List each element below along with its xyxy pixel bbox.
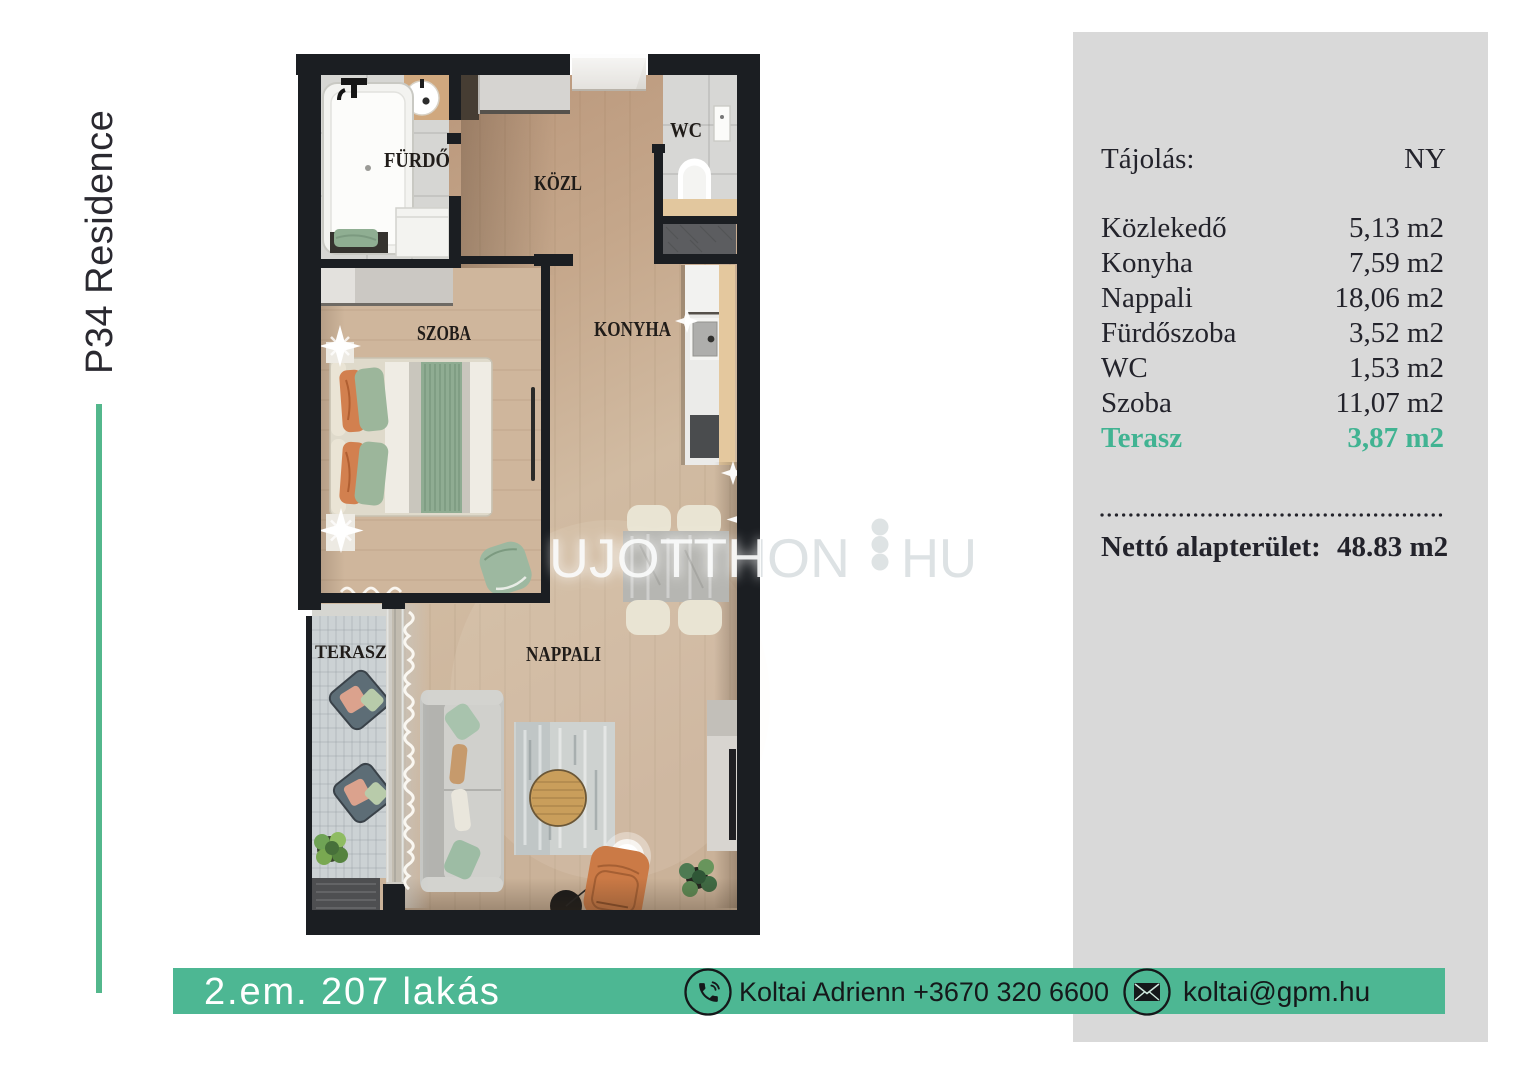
svg-text:Terasz: Terasz [1101,422,1182,454]
svg-text:Fürdőszoba: Fürdőszoba [1101,317,1236,349]
svg-text:3,87 m2: 3,87 m2 [1347,422,1444,454]
svg-text:Konyha: Konyha [1101,247,1193,279]
svg-text:Tájolás:: Tájolás: [1101,143,1194,175]
svg-text:WC: WC [1101,352,1148,384]
svg-text:48.83 m2: 48.83 m2 [1337,531,1448,563]
svg-text:WC: WC [670,118,702,142]
svg-text:5,13 m2: 5,13 m2 [1349,212,1444,244]
svg-text:Közlekedő: Közlekedő [1101,212,1227,244]
svg-text:TERASZ: TERASZ [315,642,387,663]
svg-text:FÜRDŐ: FÜRDŐ [384,148,450,172]
svg-text:Nappali: Nappali [1101,282,1193,314]
svg-text:NAPPALI: NAPPALI [526,642,601,666]
svg-text:Koltai Adrienn +3670 320 6600: Koltai Adrienn +3670 320 6600 [739,977,1109,1007]
svg-text:Nettó alapterület:: Nettó alapterület: [1101,531,1321,563]
svg-text:Szoba: Szoba [1101,387,1172,419]
svg-text:11,07 m2: 11,07 m2 [1336,387,1444,419]
svg-text:HU: HU [901,527,977,589]
svg-text:koltai@gpm.hu: koltai@gpm.hu [1183,976,1370,1007]
svg-text:3,52 m2: 3,52 m2 [1349,317,1444,349]
svg-text:2.em. 207 lakás: 2.em. 207 lakás [204,971,501,1013]
svg-text:P34 Residence: P34 Residence [79,110,121,374]
svg-text:18,06 m2: 18,06 m2 [1334,282,1444,314]
svg-text:7,59 m2: 7,59 m2 [1349,247,1444,279]
svg-text:1,53 m2: 1,53 m2 [1349,352,1444,384]
svg-text:NY: NY [1404,143,1446,175]
svg-text:SZOBA: SZOBA [417,321,472,345]
svg-text:KÖZL: KÖZL [534,171,582,195]
svg-text:KONYHA: KONYHA [594,317,672,341]
